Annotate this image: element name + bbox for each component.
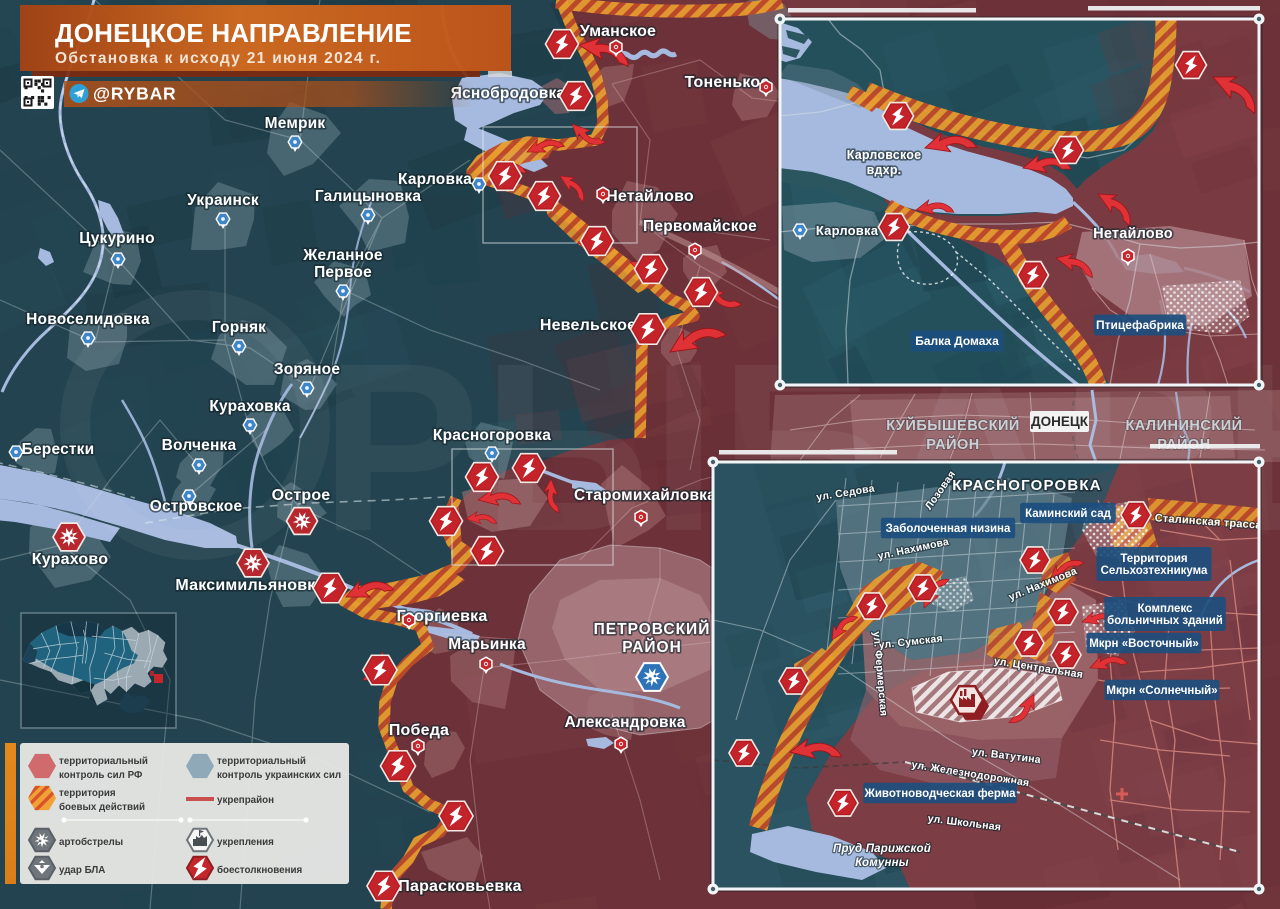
svg-text:Парасковьевка: Парасковьевка — [398, 878, 521, 895]
svg-text:Берестки: Берестки — [22, 441, 95, 458]
svg-text:Максимильяновка: Максимильяновка — [175, 577, 324, 594]
svg-text:Горняк: Горняк — [212, 319, 266, 336]
svg-text:КРАСНОГОРОВКА: КРАСНОГОРОВКА — [952, 477, 1102, 494]
svg-text:ПЕТРОВСКИЙ: ПЕТРОВСКИЙ — [594, 620, 711, 638]
svg-text:КАЛИНИНСКИЙ: КАЛИНИНСКИЙ — [1125, 416, 1242, 434]
svg-text:Александровка: Александровка — [564, 714, 685, 731]
svg-text:Каминский сад: Каминский сад — [1025, 508, 1111, 520]
svg-text:РАЙОН: РАЙОН — [622, 638, 682, 656]
svg-text:боевых действий: боевых действий — [59, 802, 145, 813]
svg-text:Нетайлово: Нетайлово — [606, 188, 694, 205]
svg-text:Обстановка к исходу 21 июня 20: Обстановка к исходу 21 июня 2024 г. — [55, 50, 381, 67]
svg-text:Марьинка: Марьинка — [448, 636, 526, 653]
svg-text:Первое: Первое — [314, 264, 372, 281]
svg-text:Нетайлово: Нетайлово — [1093, 226, 1173, 242]
svg-text:укрепрайон: укрепрайон — [217, 795, 274, 806]
svg-text:Сельхозтехникума: Сельхозтехникума — [1101, 565, 1208, 577]
svg-text:артобстрелы: артобстрелы — [59, 837, 123, 848]
svg-text:территория: территория — [59, 788, 116, 799]
svg-text:@RYBAR: @RYBAR — [93, 84, 176, 104]
svg-text:Первомайское: Первомайское — [643, 218, 757, 235]
svg-text:Острое: Острое — [272, 487, 331, 504]
svg-text:Балка Домаха: Балка Домаха — [915, 334, 999, 348]
svg-text:удар БЛА: удар БЛА — [59, 865, 105, 876]
svg-text:ДОНЕЦКОЕ НАПРАВЛЕНИЕ: ДОНЕЦКОЕ НАПРАВЛЕНИЕ — [55, 18, 412, 48]
svg-text:Островское: Островское — [150, 498, 243, 515]
svg-text:Карловское: Карловское — [847, 148, 921, 162]
svg-text:Пруд Парижской: Пруд Парижской — [833, 843, 931, 855]
svg-text:Территория: Территория — [1120, 553, 1187, 565]
svg-text:Мемрик: Мемрик — [265, 115, 326, 132]
svg-text:Галицыновка: Галицыновка — [315, 188, 421, 205]
svg-text:Цукурино: Цукурино — [79, 230, 155, 247]
svg-text:Уманское: Уманское — [580, 23, 656, 40]
svg-text:Украинск: Украинск — [187, 192, 259, 209]
svg-text:Красногоровка: Красногоровка — [433, 427, 551, 444]
svg-text:Желанное: Желанное — [302, 247, 383, 264]
svg-text:Птицефабрика: Птицефабрика — [1096, 318, 1184, 332]
svg-text:Волченка: Волченка — [162, 437, 237, 454]
svg-text:Курахово: Курахово — [32, 551, 108, 568]
svg-text:Карловка: Карловка — [816, 223, 879, 238]
svg-text:Комплекс: Комплекс — [1138, 603, 1193, 615]
svg-text:Комунны: Комунны — [855, 857, 909, 869]
svg-text:территориальный: территориальный — [217, 756, 306, 767]
svg-text:вдхр.: вдхр. — [867, 163, 902, 177]
svg-text:больничных зданий: больничных зданий — [1107, 615, 1223, 627]
svg-text:Новоселидовка: Новоселидовка — [26, 311, 150, 328]
svg-text:Зоряное: Зоряное — [274, 361, 341, 378]
svg-text:Заболоченная низина: Заболоченная низина — [886, 523, 1011, 535]
svg-text:Мкрн «Восточный»: Мкрн «Восточный» — [1089, 638, 1199, 650]
svg-text:Мкрн «Солнечный»: Мкрн «Солнечный» — [1106, 685, 1217, 697]
svg-text:ДОНЕЦК: ДОНЕЦК — [1031, 414, 1089, 429]
svg-text:укрепления: укрепления — [217, 837, 274, 848]
svg-text:Животноводческая ферма: Животноводческая ферма — [863, 788, 1016, 800]
svg-text:Победа: Победа — [389, 722, 449, 739]
svg-text:контроль украинских сил: контроль украинских сил — [217, 770, 341, 781]
svg-text:КУЙБЫШЕВСКИЙ: КУЙБЫШЕВСКИЙ — [886, 416, 1020, 434]
svg-text:боестолкновения: боестолкновения — [217, 865, 303, 876]
svg-text:контроль сил РФ: контроль сил РФ — [59, 770, 143, 781]
svg-text:Тоненькое: Тоненькое — [685, 74, 770, 91]
svg-text:Старомихайловка: Старомихайловка — [574, 487, 716, 504]
svg-text:территориальный: территориальный — [59, 756, 148, 767]
svg-text:Кураховка: Кураховка — [209, 398, 291, 415]
svg-text:РАЙОН: РАЙОН — [926, 435, 980, 453]
svg-text:Карловка: Карловка — [398, 171, 472, 188]
svg-text:Невельское: Невельское — [540, 317, 636, 334]
